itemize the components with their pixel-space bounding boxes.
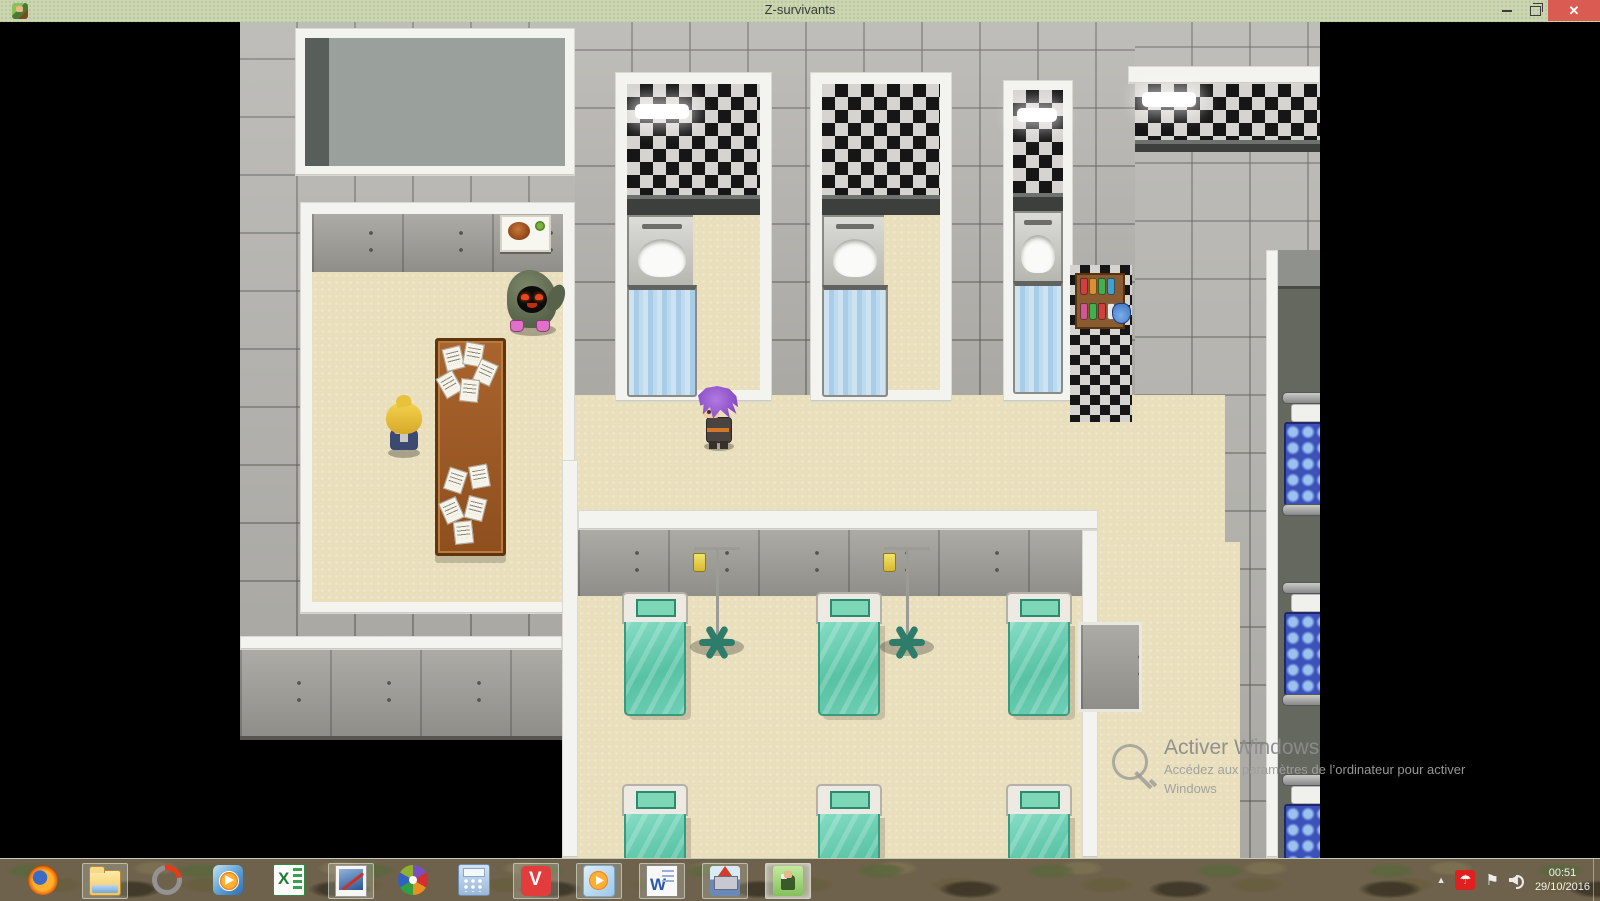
potion-wall-panel	[1070, 265, 1132, 422]
game-viewport[interactable]: Activer Windows Accédez aux paramètres d…	[0, 22, 1600, 858]
ceiling-light	[1017, 108, 1057, 122]
wmp-icon	[213, 865, 243, 895]
file-explorer-icon	[89, 870, 121, 896]
system-tray: ▲ ☂ ⚑ 00:51 29/10/2016	[1437, 859, 1590, 901]
calculator-icon	[458, 864, 490, 896]
taskbar-button-firefox[interactable]	[21, 863, 65, 897]
wall-rail	[1135, 140, 1320, 152]
ring-utility-icon	[146, 859, 188, 901]
taskbar-button-word[interactable]	[639, 863, 685, 899]
activation-watermark: Activer Windows Accédez aux paramètres d…	[1108, 736, 1538, 798]
clock[interactable]: 00:51 29/10/2016	[1535, 866, 1590, 894]
window-titlebar: Z-survivants ✕	[0, 0, 1600, 23]
wall-border	[240, 636, 562, 650]
hospital-bed	[622, 592, 688, 716]
z-survivants-icon	[773, 866, 803, 896]
player-purple-hair	[696, 386, 742, 452]
castle-game-icon	[710, 866, 740, 896]
washbasin	[1013, 211, 1063, 285]
vivaldi-icon	[521, 866, 551, 896]
hospital-bed	[622, 784, 688, 858]
firefox-icon	[28, 865, 58, 895]
shower-curtain	[627, 285, 697, 397]
blue-flask	[1112, 303, 1131, 324]
taskbar-button-z-survivants[interactable]	[765, 863, 811, 899]
taskbar-button-ring-utility[interactable]	[145, 863, 189, 897]
bunk-bed	[1282, 582, 1320, 706]
taskbar-button-paint-editor[interactable]	[328, 863, 374, 899]
shower-stall-2	[810, 72, 952, 402]
bunk-bed	[1282, 392, 1320, 516]
close-button[interactable]: ✕	[1548, 0, 1600, 21]
shower-stall-3	[1003, 80, 1073, 402]
excel-icon	[273, 864, 305, 896]
taskbar-button-picasa[interactable]	[391, 863, 435, 897]
taskbar-button-media-player[interactable]	[576, 863, 622, 899]
checker-wall	[627, 84, 760, 195]
shower-stall-1	[615, 72, 772, 402]
wall-border-top-right	[1128, 66, 1320, 84]
show-hidden-icons-button[interactable]: ▲	[1437, 875, 1446, 885]
ceiling-light	[1142, 92, 1196, 107]
taskbar-button-wmp[interactable]	[206, 863, 250, 897]
taskbar: ▲ ☂ ⚑ 00:51 29/10/2016	[0, 858, 1600, 901]
metal-block	[1078, 622, 1142, 712]
hospital-bed	[816, 592, 882, 716]
window-title: Z-survivants	[0, 2, 1600, 17]
ward-wall-top	[578, 510, 1098, 530]
taskbar-button-calculator[interactable]	[452, 863, 496, 897]
roof-room	[295, 28, 575, 176]
stall-floor	[693, 215, 760, 390]
food-picture	[500, 215, 551, 252]
media-player-icon	[583, 865, 615, 897]
hospital-bed	[1006, 592, 1072, 716]
iv-drip-stand	[688, 540, 750, 668]
hospital-bed	[816, 784, 882, 858]
key-icon	[1112, 744, 1148, 780]
washbasin	[627, 215, 697, 289]
watermark-title: Activer Windows	[1164, 736, 1538, 760]
roof-shadow-strip	[305, 38, 329, 166]
stall-floor	[884, 215, 940, 390]
blonde-npc	[382, 398, 426, 460]
taskbar-button-file-explorer[interactable]	[82, 863, 128, 899]
paper-desk	[435, 338, 506, 556]
picasa-icon	[398, 865, 428, 895]
hooded-ghoul-enemy	[504, 268, 560, 336]
avira-tray-icon[interactable]: ☂	[1455, 870, 1475, 890]
minimize-button[interactable]	[1494, 0, 1520, 21]
ward-wall-band	[578, 530, 1082, 600]
action-center-flag-icon[interactable]: ⚑	[1485, 871, 1498, 889]
roof-surface	[305, 38, 565, 166]
shower-curtain	[1013, 281, 1063, 394]
tray-time: 00:51	[1535, 866, 1590, 880]
washbasin	[822, 215, 888, 289]
tray-date: 29/10/2016	[1535, 880, 1590, 894]
taskbar-button-vivaldi[interactable]	[513, 863, 559, 899]
ward-wall-left	[562, 460, 578, 858]
checker-wall	[822, 84, 940, 195]
iv-drip-stand	[878, 540, 940, 668]
restore-button[interactable]	[1522, 0, 1548, 21]
word-icon	[646, 865, 678, 897]
taskbar-button-excel[interactable]	[267, 863, 311, 897]
show-desktop-button[interactable]	[1593, 859, 1600, 901]
volume-icon[interactable]	[1509, 873, 1525, 887]
ceiling-light	[635, 104, 689, 119]
shower-curtain	[822, 285, 888, 397]
paint-editor-icon	[335, 865, 367, 897]
checker-wall	[1013, 90, 1063, 193]
metal-wall-bottom-left	[240, 650, 562, 740]
hospital-bed	[1006, 784, 1072, 858]
watermark-line2: Windows	[1164, 779, 1538, 798]
taskbar-apps	[21, 863, 811, 897]
taskbar-button-castle-game[interactable]	[702, 863, 748, 899]
watermark-line1: Accédez aux paramètres de l’ordinateur p…	[1164, 760, 1538, 779]
